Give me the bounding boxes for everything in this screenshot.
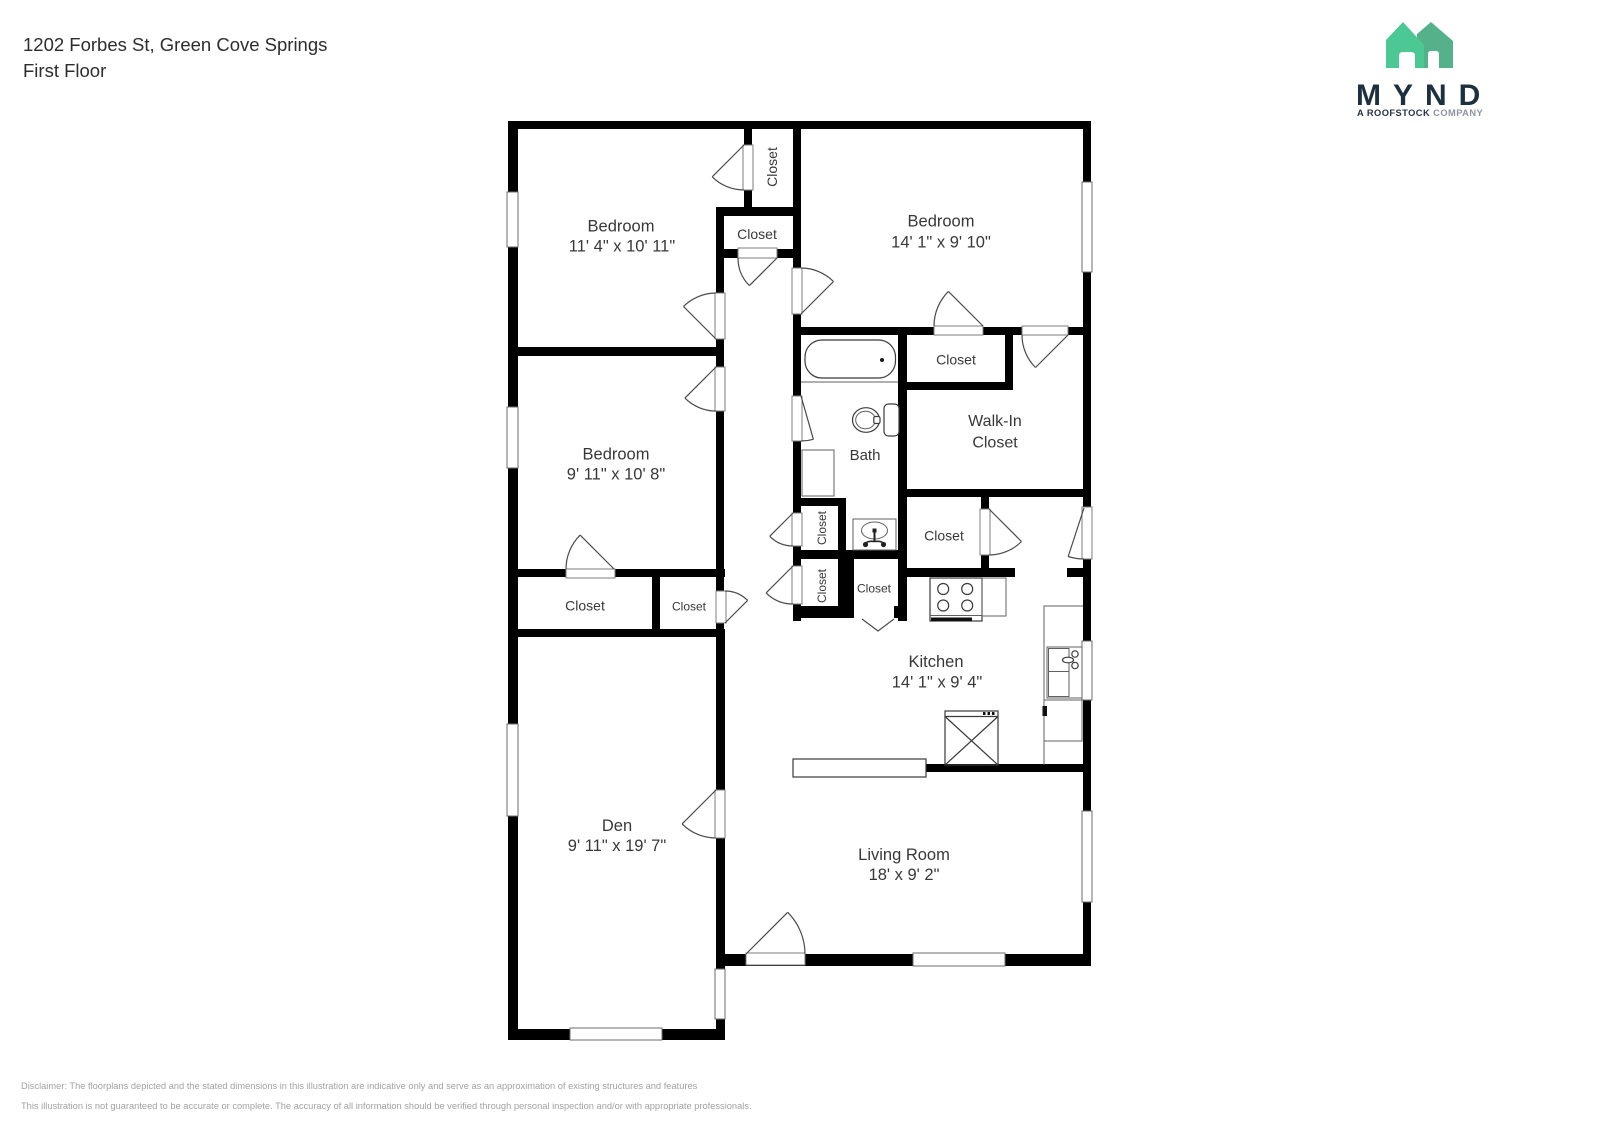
svg-text:Walk-In: Walk-In xyxy=(968,413,1022,430)
svg-text:14' 1" x 9' 4": 14' 1" x 9' 4" xyxy=(892,674,983,692)
svg-text:Den: Den xyxy=(602,817,632,835)
svg-text:Closet: Closet xyxy=(936,352,976,368)
svg-text:First Floor: First Floor xyxy=(23,60,106,81)
svg-text:Bedroom: Bedroom xyxy=(908,213,975,231)
svg-text:A ROOFSTOCK COMPANY: A ROOFSTOCK COMPANY xyxy=(1357,108,1484,118)
svg-text:Closet: Closet xyxy=(737,226,777,242)
svg-text:1202 Forbes St, Green Cove Spr: 1202 Forbes St, Green Cove Springs xyxy=(23,34,327,55)
svg-text:Closet: Closet xyxy=(815,568,829,603)
svg-text:Disclaimer: The floorplans dep: Disclaimer: The floorplans depicted and … xyxy=(21,1081,698,1091)
svg-text:Closet: Closet xyxy=(565,598,605,614)
svg-text:Closet: Closet xyxy=(764,147,780,187)
svg-text:Closet: Closet xyxy=(815,510,829,545)
svg-text:Closet: Closet xyxy=(924,528,964,544)
svg-text:Bedroom: Bedroom xyxy=(583,446,650,464)
svg-text:18' x 9' 2": 18' x 9' 2" xyxy=(869,866,940,884)
svg-text:Closet: Closet xyxy=(972,435,1018,452)
svg-text:14' 1" x 9' 10": 14' 1" x 9' 10" xyxy=(891,234,991,252)
svg-text:Bedroom: Bedroom xyxy=(588,218,655,236)
svg-text:This illustration is not guara: This illustration is not guaranteed to b… xyxy=(21,1101,752,1111)
svg-text:Closet: Closet xyxy=(857,582,892,596)
svg-text:11' 4" x 10' 11": 11' 4" x 10' 11" xyxy=(569,238,676,256)
svg-text:9' 11" x 10' 8": 9' 11" x 10' 8" xyxy=(567,466,666,484)
svg-text:9' 11" x 19' 7": 9' 11" x 19' 7" xyxy=(568,837,667,855)
svg-text:Kitchen: Kitchen xyxy=(908,653,963,671)
svg-text:Closet: Closet xyxy=(672,600,707,614)
svg-text:Bath: Bath xyxy=(850,447,881,464)
svg-text:Living Room: Living Room xyxy=(858,846,950,864)
